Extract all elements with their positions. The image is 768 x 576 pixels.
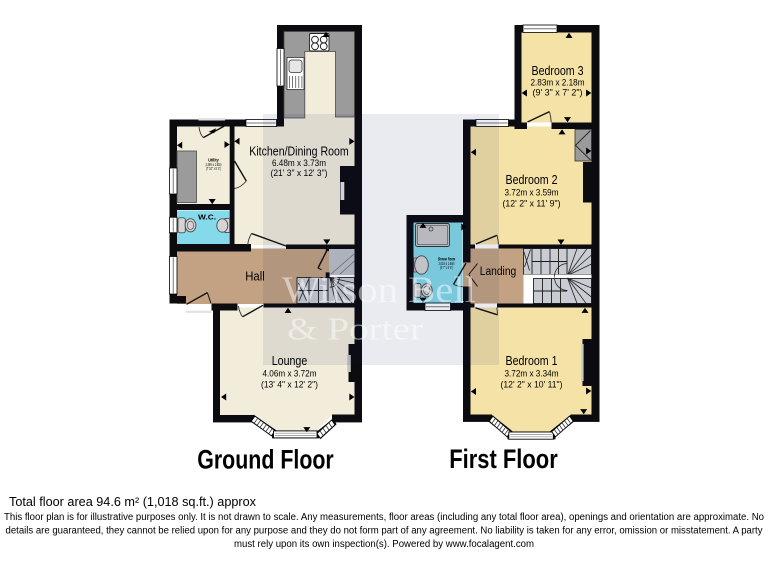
svg-text:Hall: Hall [245, 270, 265, 284]
svg-text:First Floor: First Floor [449, 444, 558, 474]
svg-text:& Porter: & Porter [287, 311, 423, 347]
svg-text:(13' 4" x 12' 2"): (13' 4" x 12' 2") [261, 380, 318, 391]
svg-text:(9' 3" x 7' 2"): (9' 3" x 7' 2") [533, 88, 583, 99]
svg-text:3.72m x 3.34m: 3.72m x 3.34m [505, 369, 559, 380]
svg-text:must rely upon its own inspect: must rely upon its own inspection(s). Po… [234, 539, 534, 550]
svg-text:(12' 2" x 10' 11"): (12' 2" x 10' 11") [501, 380, 563, 391]
svg-text:W.C.: W.C. [198, 212, 216, 221]
svg-text:(7' 10" x 5' 4"): (7' 10" x 5' 4") [206, 166, 221, 171]
svg-text:Bedroom 3: Bedroom 3 [532, 64, 584, 78]
svg-text:details are guaranteed, they c: details are guaranteed, they cannot be r… [6, 526, 763, 537]
svg-text:4.06m x 3.72m: 4.06m x 3.72m [263, 369, 317, 380]
svg-text:Ground Floor: Ground Floor [197, 444, 334, 474]
svg-text:This floor plan is for illustr: This floor plan is for illustrative purp… [4, 512, 765, 523]
svg-text:(12' 2" x 11' 9"): (12' 2" x 11' 9") [503, 199, 561, 210]
svg-text:Wilson Bell: Wilson Bell [282, 270, 476, 311]
svg-text:Bedroom 1: Bedroom 1 [506, 354, 558, 368]
svg-text:3.72m x 3.59m: 3.72m x 3.59m [505, 188, 559, 199]
svg-text:Bedroom 2: Bedroom 2 [506, 173, 558, 187]
svg-text:Total floor area 94.6 m² (1,01: Total floor area 94.6 m² (1,018 sq.ft.) … [9, 494, 256, 509]
